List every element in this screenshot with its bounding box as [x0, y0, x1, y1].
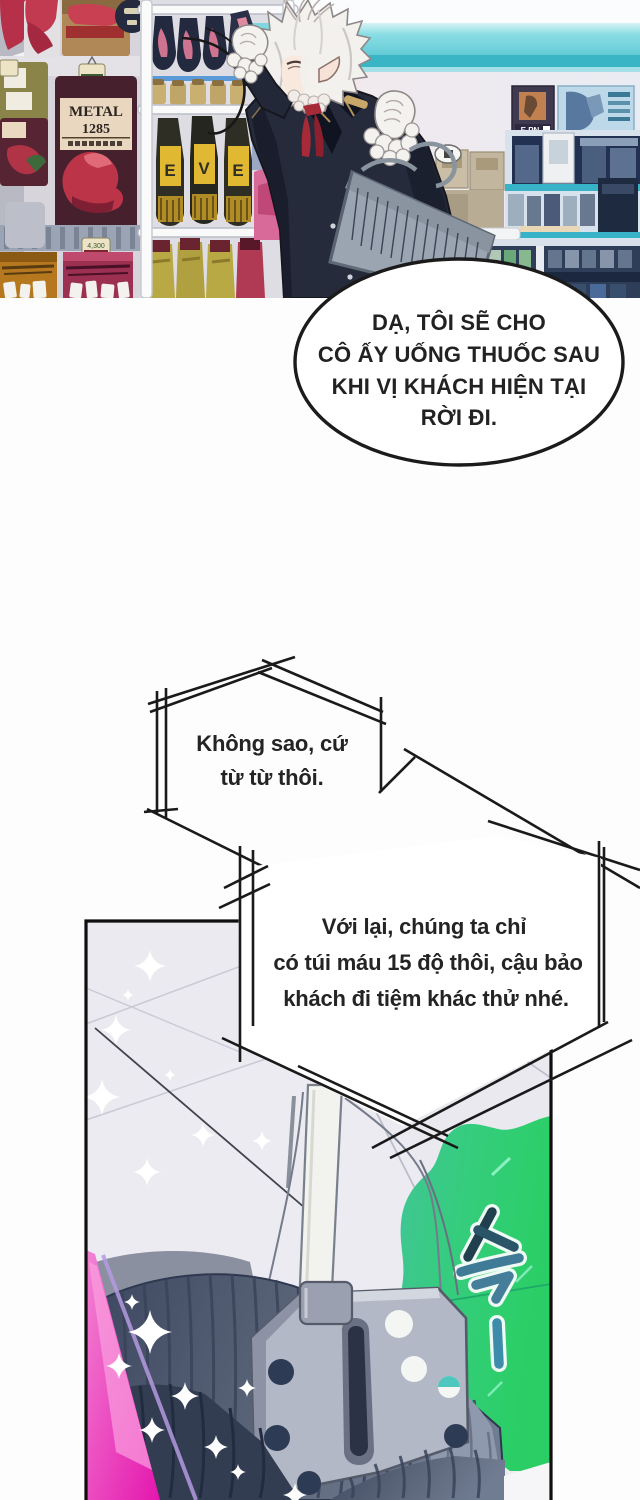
svg-text:có túi máu 15 độ thôi, cậu bảo: có túi máu 15 độ thôi, cậu bảo — [273, 950, 582, 975]
svg-text:V: V — [198, 159, 210, 178]
svg-text:Với lại, chúng ta chỉ: Với lại, chúng ta chỉ — [322, 914, 527, 939]
svg-text:khách đi tiệm khác thử nhé.: khách đi tiệm khác thử nhé. — [283, 986, 569, 1011]
svg-text:METAL: METAL — [69, 104, 123, 120]
svg-text:CÔ ẤY UỐNG THUỐC SAU: CÔ ẤY UỐNG THUỐC SAU — [318, 341, 600, 367]
svg-text:1285: 1285 — [82, 122, 110, 137]
svg-text:từ từ thôi.: từ từ thôi. — [221, 765, 324, 790]
svg-text:4,300: 4,300 — [87, 243, 105, 250]
svg-text:KHI VỊ KHÁCH HIỆN TẠI: KHI VỊ KHÁCH HIỆN TẠI — [332, 374, 587, 399]
svg-text:E: E — [164, 161, 175, 180]
svg-text:DẠ, TÔI SẼ CHO: DẠ, TÔI SẼ CHO — [372, 310, 546, 335]
svg-text:E: E — [232, 161, 243, 180]
svg-text:RỜI ĐI.: RỜI ĐI. — [421, 405, 497, 430]
svg-text:Không sao, cứ: Không sao, cứ — [196, 731, 348, 756]
